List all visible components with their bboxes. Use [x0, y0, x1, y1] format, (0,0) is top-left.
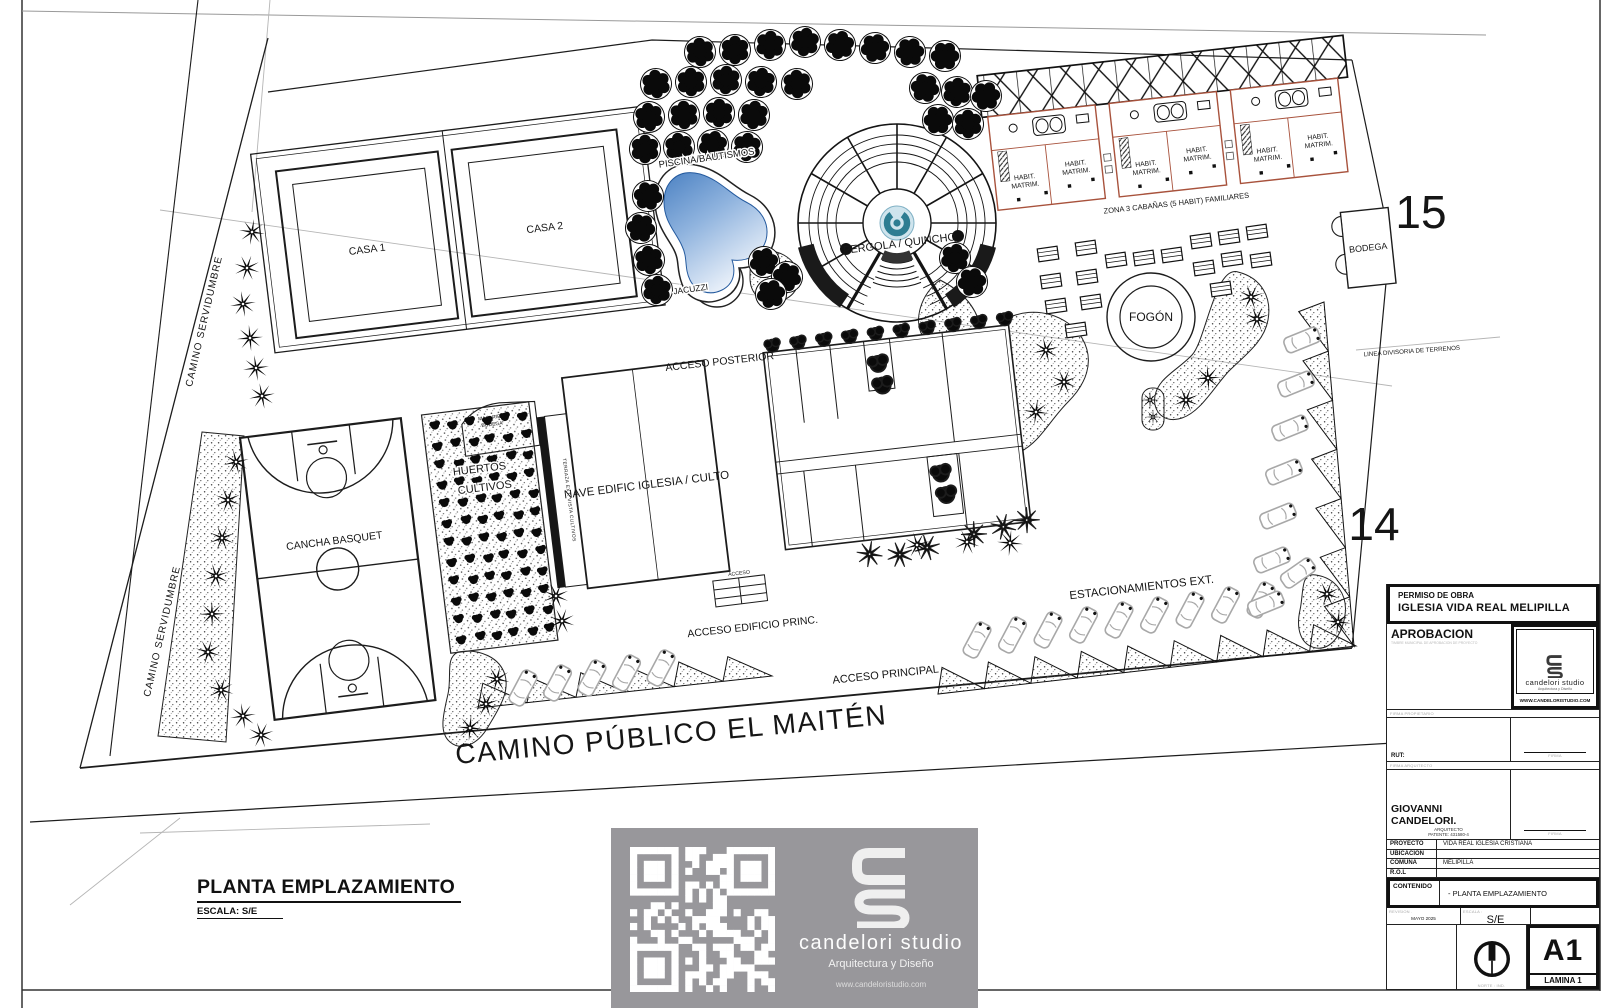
bench-icon	[1193, 260, 1215, 276]
parked-car-icon	[1252, 546, 1291, 574]
aprobacion-label: APROBACION	[1391, 627, 1507, 641]
palm-tree-icon	[232, 320, 269, 357]
parked-car-icon	[645, 648, 676, 687]
leaf-tree-icon	[716, 31, 754, 69]
firma-propietario-caption: FIRMA PROPIETARIO	[1387, 710, 1599, 718]
entry-stairs	[713, 575, 768, 607]
leaf-tree-icon	[736, 97, 771, 132]
drawing-sheet: CASA 1 CASA 2 HABIT.MATRIM.HABIT.MATRIM.…	[0, 0, 1612, 1008]
leaf-tree-icon	[708, 62, 745, 99]
label-camino-publico: CAMINO PÚBLICO EL MAITÉN	[454, 699, 888, 770]
escala-value: S/E	[1463, 914, 1528, 926]
palm-tree-icon	[244, 378, 280, 414]
leaf-tree-icon	[636, 64, 676, 104]
bench-icon	[1250, 252, 1272, 268]
contenido-label: CONTENIDO	[1390, 881, 1440, 905]
studio-tagline: Arquitectura y Diseño	[771, 958, 991, 970]
info-row-rol: R.O.L	[1387, 869, 1599, 879]
contenido-value: - PLANTA EMPLAZAMIENTO	[1440, 881, 1596, 905]
leaf-tree-icon	[750, 25, 790, 65]
leaf-tree-icon	[672, 63, 711, 102]
palm-tree-icon	[1145, 409, 1161, 425]
leaf-tree-icon	[923, 34, 967, 78]
parked-car-icon	[1258, 502, 1297, 530]
info-label: COMUNA	[1387, 859, 1437, 868]
parked-car-icon	[1139, 595, 1170, 634]
parked-car-icon	[1032, 610, 1063, 649]
bench-icon	[1221, 251, 1243, 267]
bench-icon	[1218, 229, 1240, 245]
revision-value: MAYO 2025	[1389, 916, 1458, 921]
info-row-proyecto: PROYECTO VIDA REAL IGLESIA CRISTIANA	[1387, 840, 1599, 850]
label-acceso-edificio: ACCESO EDIFICIO PRINC.	[687, 614, 819, 640]
label-parcel-14: 14	[1348, 498, 1399, 550]
info-label: PROYECTO	[1387, 840, 1437, 849]
parked-car-icon	[1103, 600, 1134, 639]
label-acceso-posterior: ACCESO POSTERIOR	[665, 350, 775, 374]
leaf-tree-icon	[682, 34, 718, 70]
palm-tree-icon	[1141, 391, 1159, 409]
parked-car-icon	[1210, 585, 1241, 624]
firma-line: FIRMA	[1524, 830, 1586, 836]
bench-icon	[1161, 247, 1183, 263]
leaf-tree-icon	[629, 97, 670, 138]
arquitecto-name: GIOVANNI CANDELORI.	[1391, 803, 1506, 827]
studio-name: candelori studio	[771, 932, 991, 955]
arquitecto-patente: PATENTE: 431580-4	[1428, 832, 1469, 837]
propietario-sign-box: RUT: FIRMA	[1387, 718, 1599, 762]
parked-car-icon	[1068, 605, 1099, 644]
cabin-unit: HABIT.MATRIM.HABIT.MATRIM.	[1109, 90, 1237, 196]
bench-icon	[1065, 322, 1087, 338]
bench-icon	[1076, 269, 1098, 285]
info-row-comuna: COMUNA MELIPILLA	[1387, 859, 1599, 869]
leaf-tree-icon	[903, 66, 946, 109]
label-casa-2: CASA 2	[526, 220, 564, 236]
palm-tree-icon	[244, 718, 279, 753]
palm-tree-icon	[228, 289, 258, 319]
permiso-box: PERMISO DE OBRA IGLESIA VIDA REAL MELIPI…	[1387, 584, 1599, 624]
lamina-label: LAMINA 1	[1530, 973, 1596, 986]
bodega-building: BODEGA	[1330, 207, 1396, 289]
aprobacion-box: APROBACION TIMBRE MUNICIPAL DE APROBACIO…	[1387, 624, 1599, 710]
parked-car-icon	[1282, 326, 1321, 354]
firma-line: FIRMA	[1524, 752, 1586, 758]
leaf-tree-icon	[700, 94, 737, 131]
leaf-tree-icon	[784, 21, 825, 62]
bench-icon	[1190, 233, 1212, 249]
format-box: A1 LAMINA 1	[1527, 925, 1599, 989]
sawtooth-parking-edge	[938, 625, 1356, 694]
label-fogon: FOGÓN	[1129, 309, 1173, 324]
palm-tree-icon	[230, 251, 263, 284]
bench-icon	[1105, 252, 1127, 268]
cabins-zone: HABIT.MATRIM.HABIT.MATRIM.HABIT.MATRIM.H…	[977, 35, 1360, 227]
label-casa-1: CASA 1	[348, 242, 386, 258]
leaf-tree-icon	[664, 95, 703, 134]
cabin-unit: HABIT.MATRIM.HABIT.MATRIM.	[988, 104, 1116, 210]
palm-tree-icon	[228, 701, 258, 731]
bench-icon	[1075, 240, 1097, 256]
info-row-ubicacion: UBICACION	[1387, 850, 1599, 860]
format-value: A1	[1530, 928, 1596, 973]
page-title: PLANTA EMPLAZAMIENTO	[197, 876, 461, 903]
parked-car-icon	[1270, 414, 1309, 442]
north-arrow-icon	[1466, 935, 1518, 983]
studio-cs-logo-icon	[847, 844, 917, 928]
bench-icon	[1040, 273, 1062, 289]
permiso-title: IGLESIA VIDA REAL MELIPILLA	[1398, 602, 1588, 614]
bench-icon	[1246, 224, 1268, 240]
aprobacion-sub: TIMBRE MUNICIPAL DE APROBACION DE PROYEC…	[1391, 641, 1507, 645]
fogon-firepit: FOGÓN	[1107, 273, 1195, 361]
label-camino-servidumbre-1: CAMINO SERVIDUMBRE	[184, 255, 225, 388]
north-caption: NORTE : IND.	[1478, 983, 1506, 989]
leaf-tree-icon	[744, 65, 779, 100]
palm-tree-icon	[241, 353, 270, 382]
studio-cs-mini-icon	[1544, 654, 1566, 678]
casas-compound: CASA 1 CASA 2	[251, 106, 665, 352]
bench-icon	[1210, 281, 1232, 297]
leaf-tree-icon	[819, 24, 861, 66]
stamp-studio-name: candelori studio	[1526, 678, 1585, 687]
info-value: VIDA REAL IGLESIA CRISTIANA	[1437, 841, 1599, 847]
label-parcel-15: 15	[1395, 186, 1446, 238]
north-format-row: NORTE : IND. A1 LAMINA 1	[1387, 925, 1599, 990]
info-label: UBICACION	[1387, 850, 1437, 859]
drawing-title-block: PLANTA EMPLAZAMIENTO ESCALA: S/E	[197, 876, 461, 919]
title-block: PERMISO DE OBRA IGLESIA VIDA REAL MELIPI…	[1386, 584, 1600, 990]
contenido-box: CONTENIDO - PLANTA EMPLAZAMIENTO	[1387, 878, 1599, 908]
qr-code-icon	[630, 847, 775, 992]
bench-icon	[1080, 294, 1102, 310]
courtyard-building	[762, 310, 1050, 585]
studio-logo-banner: candelori studio Arquitectura y Diseño w…	[611, 828, 978, 1008]
info-value: MELIPILLA	[1437, 860, 1599, 866]
stamp-studio-web: WWW.CANDELORISTUDIO.COM	[1514, 696, 1596, 706]
leaf-tree-icon	[888, 30, 932, 74]
rut-label: RUT:	[1391, 753, 1506, 759]
label-acceso-principal: ACCESO PRINCIPAL	[832, 663, 939, 686]
info-label: R.O.L	[1387, 869, 1437, 878]
parked-car-icon	[961, 620, 992, 659]
label-linea-divisoria: LINEA DIVISORIA DE TERRENOS	[1364, 345, 1461, 359]
revision-escala-row: REVISION . MAYO 2025 ESCALA : S/E	[1387, 908, 1599, 925]
leaf-tree-icon	[779, 66, 815, 102]
page-scale: ESCALA: S/E	[197, 906, 283, 919]
firma-arquitecto-caption: FIRMA ARQUITECTO	[1387, 762, 1599, 770]
leaf-tree-icon	[853, 26, 896, 69]
parked-car-icon	[997, 615, 1028, 654]
arquitecto-sign-box: GIOVANNI CANDELORI. ARQUITECTO PATENTE: …	[1387, 770, 1599, 840]
bench-icon	[1045, 298, 1067, 314]
parked-car-icon	[1264, 458, 1303, 486]
revision-caption: REVISION .	[1389, 909, 1458, 914]
bench-icon	[1133, 250, 1155, 266]
permiso-header: PERMISO DE OBRA	[1398, 591, 1588, 600]
studio-website: www.candeloristudio.com	[771, 980, 991, 989]
north-arrow-cell: NORTE : IND.	[1457, 925, 1527, 989]
studio-stamp: candelori studio Arquitectura y Diseño W…	[1511, 624, 1599, 709]
cabin-unit: HABIT.MATRIM.HABIT.MATRIM.	[1230, 78, 1348, 183]
bench-icon	[1037, 246, 1059, 262]
parked-car-icon	[1174, 590, 1205, 629]
parked-car-icon	[1276, 370, 1315, 398]
stamp-studio-tag: Arquitectura y Diseño	[1538, 687, 1572, 691]
basketball-court: CANCHA BASQUET	[240, 418, 435, 720]
palm-tree-icon	[234, 214, 270, 250]
